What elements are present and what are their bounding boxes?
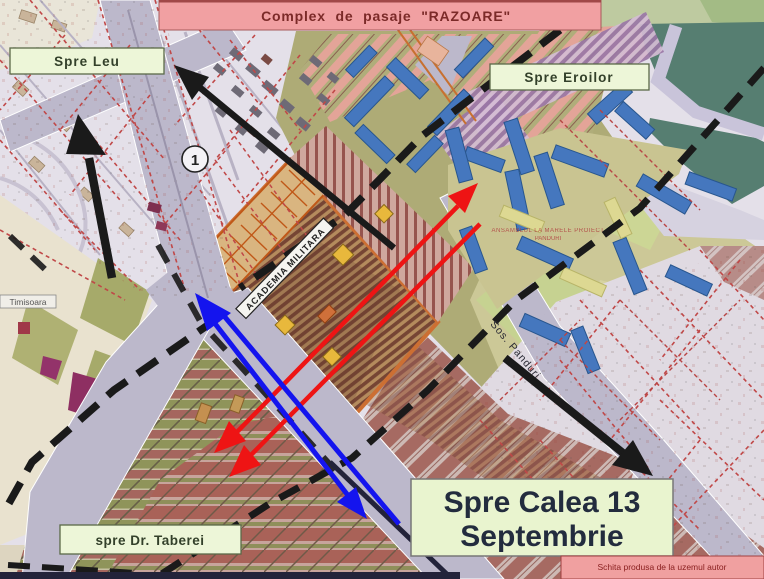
svg-text:Complex de pasaje "RAZOARE": Complex de pasaje "RAZOARE" [261,8,511,24]
svg-text:Spre Leu: Spre Leu [54,54,120,69]
svg-text:Septembrie: Septembrie [460,520,623,553]
svg-text:ANSAMBLUL LA MARELE PROIECT: ANSAMBLUL LA MARELE PROIECT [492,228,605,234]
svg-text:Spre Calea 13: Spre Calea 13 [444,486,641,519]
svg-text:PANDURI: PANDURI [535,236,562,242]
svg-text:spre Dr. Taberei: spre Dr. Taberei [95,533,204,548]
svg-text:1: 1 [191,152,199,169]
svg-text:Schita produsa de la uzemul a: Schita produsa de la uzemul autor [598,562,727,572]
svg-text:Spre Eroilor: Spre Eroilor [524,70,613,85]
svg-text:Timisoara: Timisoara [10,297,47,307]
